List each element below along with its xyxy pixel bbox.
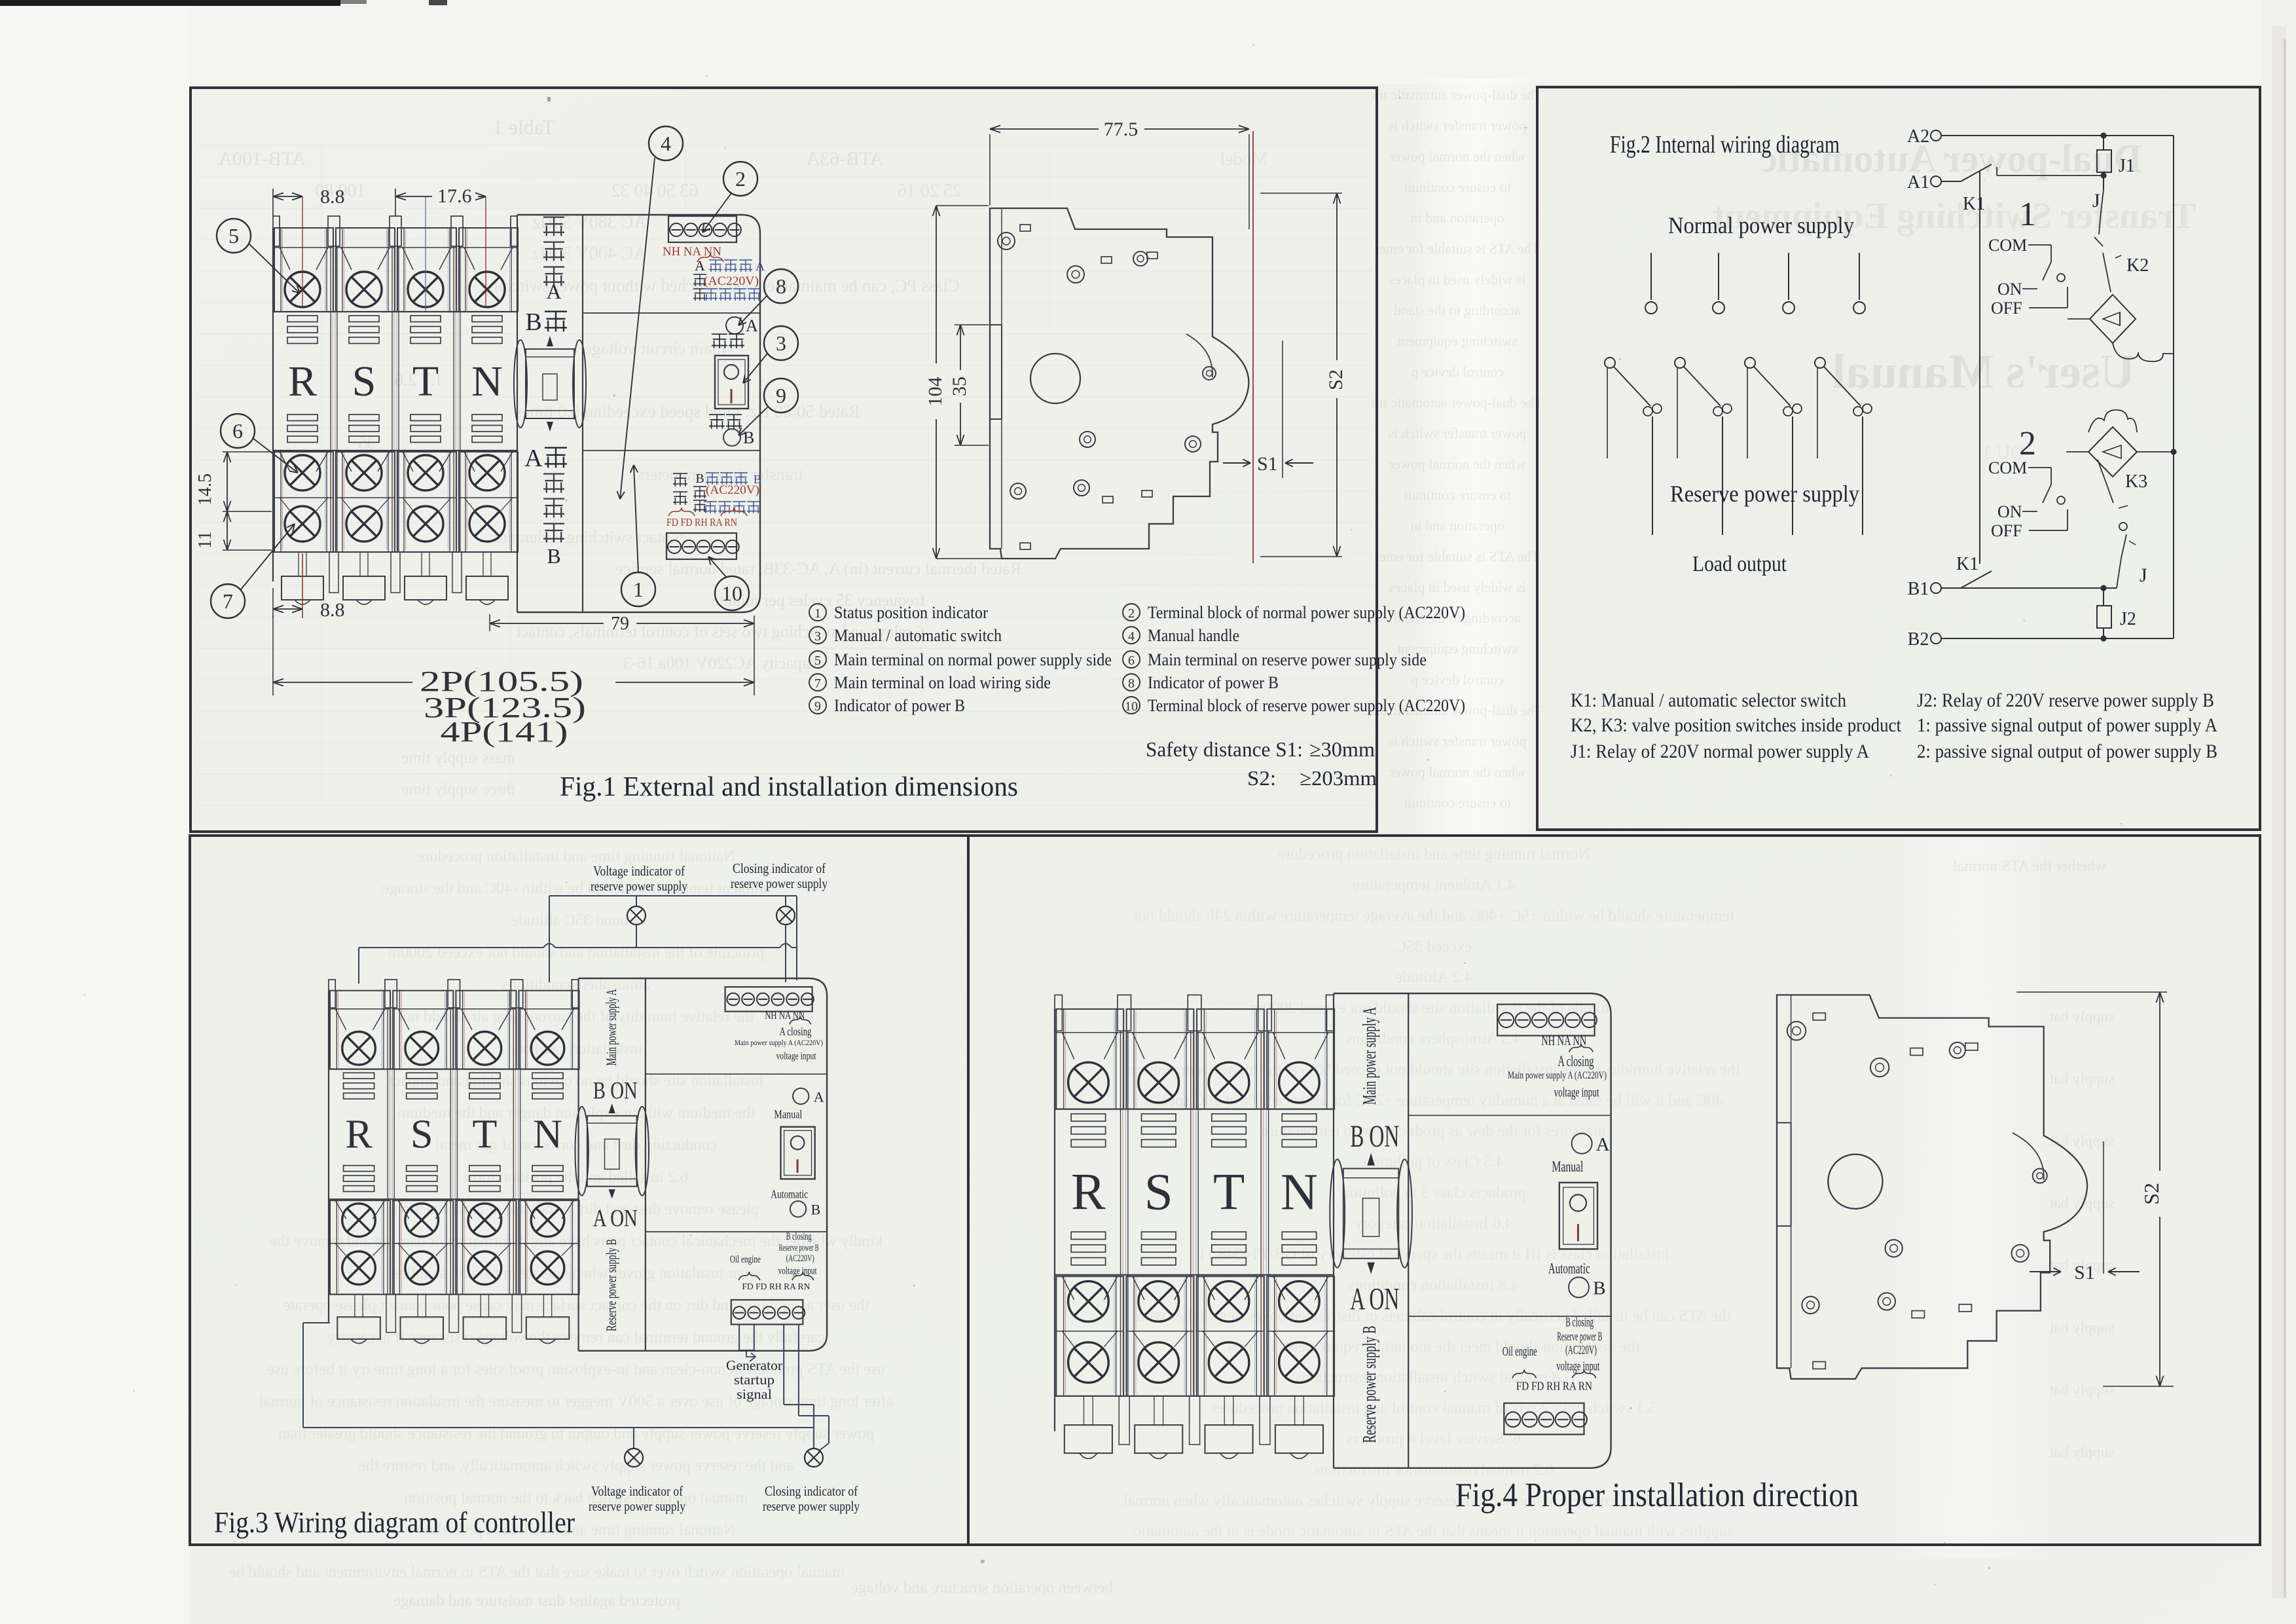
svg-text:63 50 40 32: 63 50 40 32 bbox=[611, 181, 699, 201]
svg-text:NH NA NN: NH NA NN bbox=[1541, 1033, 1586, 1048]
svg-text:9: 9 bbox=[776, 384, 786, 407]
svg-text:contact switching endurance: contact switching endurance bbox=[492, 528, 686, 547]
svg-text:A closing: A closing bbox=[780, 1025, 812, 1038]
svg-text:Reserve power supply: Reserve power supply bbox=[1670, 481, 1859, 507]
svg-text:protected against dust moistur: protected against dust moisture and dama… bbox=[393, 1592, 680, 1610]
svg-text:T: T bbox=[412, 358, 439, 405]
svg-text:Manual: Manual bbox=[1552, 1158, 1583, 1175]
svg-text:≥203mm: ≥203mm bbox=[1300, 766, 1377, 790]
svg-text:B: B bbox=[547, 544, 560, 568]
svg-text:J: J bbox=[2140, 564, 2147, 586]
svg-text:Normal running time and instal: Normal running time and installation pro… bbox=[1278, 845, 1590, 863]
svg-text:B2: B2 bbox=[1908, 629, 1929, 650]
svg-text:R: R bbox=[345, 1113, 373, 1157]
svg-text:ON: ON bbox=[1997, 280, 2022, 299]
svg-text:supply bat: supply bat bbox=[2049, 1071, 2115, 1088]
svg-text:T: T bbox=[472, 1113, 497, 1157]
svg-text:≥30mm: ≥30mm bbox=[1309, 737, 1375, 761]
svg-text:to ensure continuit: to ensure continuit bbox=[1404, 794, 1511, 811]
svg-text:Manual: Manual bbox=[774, 1108, 802, 1121]
svg-text:17.6: 17.6 bbox=[437, 185, 472, 207]
svg-text:reserve power supply: reserve power supply bbox=[763, 1498, 860, 1514]
svg-text:(AC220V): (AC220V) bbox=[704, 274, 759, 288]
svg-text:A: A bbox=[524, 445, 543, 472]
svg-text:10: 10 bbox=[1125, 699, 1138, 714]
svg-text:K3: K3 bbox=[2125, 471, 2147, 492]
svg-text:supply bat: supply bat bbox=[2049, 1319, 2115, 1337]
svg-text:5.1 switch links 2 sets of man: 5.1 switch links 2 sets of manual contro… bbox=[1211, 1399, 1656, 1417]
svg-text:B closing: B closing bbox=[1565, 1316, 1594, 1330]
svg-text:to ensure continuit: to ensure continuit bbox=[1404, 487, 1511, 503]
svg-text:7: 7 bbox=[814, 676, 821, 691]
svg-text:Indicator of power B: Indicator of power B bbox=[834, 696, 965, 715]
svg-text:104: 104 bbox=[924, 377, 946, 407]
svg-text:supply bat: supply bat bbox=[2049, 1382, 2115, 1399]
svg-text:Manual handle: Manual handle bbox=[1148, 626, 1239, 645]
svg-text:7: 7 bbox=[223, 589, 233, 613]
svg-text:reserve power supply: reserve power supply bbox=[731, 876, 828, 891]
svg-text:Safety distance S1:: Safety distance S1: bbox=[1146, 737, 1303, 761]
svg-text:77.5: 77.5 bbox=[1104, 119, 1139, 140]
svg-text:measures for the dew as produc: measures for the dew as products due to … bbox=[1262, 1122, 1606, 1140]
svg-text:R: R bbox=[288, 358, 317, 405]
svg-text:ATB-63A: ATB-63A bbox=[806, 148, 884, 170]
svg-text:B closing: B closing bbox=[786, 1231, 812, 1242]
svg-text:Fig.3 Wiring diagram of contro: Fig.3 Wiring diagram of controller bbox=[214, 1505, 575, 1539]
svg-text:J1: J1 bbox=[2119, 156, 2135, 176]
svg-text:1: 1 bbox=[814, 606, 821, 621]
svg-text:6.2 manual maintenance instruc: 6.2 manual maintenance instructions bbox=[1314, 1461, 1554, 1479]
svg-text:Fig.2 Internal wiring diagram: Fig.2 Internal wiring diagram bbox=[1610, 131, 1840, 158]
svg-text:Main terminal on load wiring s: Main terminal on load wiring side bbox=[834, 673, 1051, 692]
svg-text:B: B bbox=[743, 428, 754, 447]
svg-text:voltage input: voltage input bbox=[1556, 1359, 1599, 1374]
svg-text:exceed 35C: exceed 35C bbox=[1395, 938, 1472, 955]
svg-text:Oil engine: Oil engine bbox=[1503, 1344, 1537, 1359]
svg-text:wear insulation gloves when op: wear insulation gloves when operate in p… bbox=[393, 1264, 759, 1282]
svg-text:Automatic: Automatic bbox=[771, 1187, 808, 1200]
svg-text:principle of the installation: principle of the installation and should… bbox=[388, 944, 764, 961]
svg-text:Model: Model bbox=[1220, 149, 1267, 170]
svg-text:supply bat: supply bat bbox=[2049, 1444, 2115, 1461]
svg-text:A1: A1 bbox=[1907, 172, 1929, 193]
svg-text:when the normal power: when the normal power bbox=[1389, 764, 1525, 780]
svg-text:between operation structure an: between operation structure and voltage bbox=[851, 1579, 1113, 1596]
svg-text:J: J bbox=[2092, 190, 2100, 212]
svg-text:2: 2 bbox=[1128, 606, 1135, 621]
svg-text:3: 3 bbox=[814, 629, 821, 644]
svg-text:4: 4 bbox=[1128, 629, 1135, 644]
svg-text:B: B bbox=[525, 308, 541, 336]
svg-text:(AC220V): (AC220V) bbox=[1565, 1343, 1597, 1357]
svg-text:5: 5 bbox=[814, 654, 821, 668]
svg-text:4P(141): 4P(141) bbox=[441, 716, 568, 748]
svg-text:Fig.1 External and installatio: Fig.1 External and installation dimensio… bbox=[560, 772, 1018, 802]
svg-text:use the ATS products in non-cl: use the ATS products in non-clean and in… bbox=[267, 1361, 886, 1378]
svg-text:to ensure continuit: to ensure continuit bbox=[1404, 179, 1511, 195]
svg-text:FD FD RH RA RN: FD FD RH RA RN bbox=[1516, 1379, 1592, 1392]
svg-text:products class 3 in pollution: products class 3 in pollution bbox=[1341, 1184, 1526, 1202]
svg-text:control device p: control device p bbox=[1411, 363, 1504, 380]
svg-text:Main terminal on reserve power: Main terminal on reserve power supply si… bbox=[1148, 650, 1427, 669]
svg-text:1: 1 bbox=[2019, 196, 2036, 233]
svg-text:supply bat: supply bat bbox=[2049, 1195, 2115, 1212]
svg-text:Voltage indicator of: Voltage indicator of bbox=[593, 863, 685, 879]
svg-text:2: 2 bbox=[735, 167, 746, 191]
svg-text:ON: ON bbox=[1997, 502, 2022, 521]
svg-text:10: 10 bbox=[721, 581, 742, 605]
svg-text:B1: B1 bbox=[1908, 579, 1929, 599]
svg-text:The ATS is suitable for emer: The ATS is suitable for emer bbox=[1374, 548, 1540, 564]
svg-text:supplies with manual operation: supplies with manual operation it means … bbox=[1134, 1522, 1734, 1540]
svg-text:A ON: A ON bbox=[1350, 1282, 1399, 1316]
svg-text:reserve power supply: reserve power supply bbox=[589, 1498, 685, 1514]
svg-text:A2: A2 bbox=[1907, 126, 1929, 147]
svg-text:Manual / automatic switch: Manual / automatic switch bbox=[834, 626, 1002, 645]
svg-text:FD FD RH RA RN: FD FD RH RA RN bbox=[666, 516, 737, 528]
svg-text:OFF: OFF bbox=[1991, 299, 2022, 318]
svg-text:Main terminal on normal power: Main terminal on normal power supply sid… bbox=[834, 650, 1112, 669]
svg-text:14.5: 14.5 bbox=[195, 473, 215, 506]
svg-text:J2: J2 bbox=[2120, 609, 2136, 629]
svg-text:Reserve power supply B: Reserve power supply B bbox=[1359, 1326, 1380, 1443]
svg-text:Main power supply A (AC220V): Main power supply A (AC220V) bbox=[735, 1038, 823, 1047]
svg-text:11: 11 bbox=[195, 531, 215, 549]
svg-text:carefully the ground terminal: carefully the ground terminal can remove… bbox=[327, 1329, 825, 1346]
svg-text:9: 9 bbox=[814, 699, 821, 714]
svg-text:switching equipment: switching equipment bbox=[1397, 333, 1518, 349]
svg-text:Fig.4 Proper installation dire: Fig.4 Proper installation direction bbox=[1455, 1477, 1859, 1514]
svg-text:Rated thermal current (in) A,: Rated thermal current (in) A, AC-33B, ra… bbox=[615, 559, 1021, 578]
svg-text:mass supply time: mass supply time bbox=[401, 749, 515, 767]
svg-text:User's Manual: User's Manual bbox=[1832, 345, 2136, 399]
svg-text:is widely used in places: is widely used in places bbox=[1389, 579, 1526, 595]
svg-text:around 35C altitude: around 35C altitude bbox=[511, 912, 642, 929]
svg-text:installation category: installation category bbox=[509, 1040, 643, 1058]
svg-text:8.8: 8.8 bbox=[320, 186, 345, 208]
svg-text:B: B bbox=[1593, 1278, 1605, 1299]
svg-text:J2: Relay of 220V reserve powe: J2: Relay of 220V reserve power supply B bbox=[1917, 690, 2214, 711]
svg-text:FD FD RH RA RN: FD FD RH RA RN bbox=[742, 1282, 810, 1292]
svg-text:79: 79 bbox=[611, 614, 629, 634]
svg-text:S2:: S2: bbox=[1247, 766, 1276, 790]
svg-text:T: T bbox=[1213, 1164, 1245, 1221]
svg-text:The dual-power automatic tra: The dual-power automatic tra bbox=[1372, 86, 1542, 103]
svg-text:supply bat: supply bat bbox=[2049, 1133, 2115, 1150]
svg-text:S1: S1 bbox=[1257, 453, 1278, 475]
svg-text:6: 6 bbox=[1128, 654, 1135, 668]
svg-text:K2: K2 bbox=[2126, 255, 2149, 276]
svg-text:signal: signal bbox=[737, 1386, 772, 1402]
svg-text:J1: Relay of 220V normal power: J1: Relay of 220V normal power supply A bbox=[1571, 741, 1869, 762]
svg-text:Oil engine: Oil engine bbox=[730, 1254, 761, 1265]
svg-text:when the normal power: when the normal power bbox=[1389, 148, 1525, 164]
svg-text:K1: K1 bbox=[1963, 194, 1985, 214]
svg-text:Voltage indicator of: Voltage indicator of bbox=[591, 1483, 683, 1499]
svg-text:COM: COM bbox=[1988, 236, 2027, 255]
svg-text:1: passive signal output of po: 1: passive signal output of power supply… bbox=[1917, 714, 2217, 736]
svg-text:B: B bbox=[811, 1202, 821, 1218]
svg-text:40C and it will be rated at a: 40C and it will be rated at a humidity t… bbox=[1144, 1092, 1724, 1109]
svg-text:Reserve power supply B: Reserve power supply B bbox=[603, 1239, 619, 1331]
svg-text:S1: S1 bbox=[2074, 1262, 2095, 1283]
svg-text:Terminal block of normal power: Terminal block of normal power supply (A… bbox=[1148, 603, 1465, 622]
svg-text:voltage input: voltage input bbox=[778, 1266, 817, 1277]
svg-text:S: S bbox=[410, 1113, 433, 1157]
svg-text:The ATS is suitable for emer: The ATS is suitable for emer bbox=[1374, 240, 1540, 257]
svg-text:2: 2 bbox=[2019, 425, 2036, 462]
svg-text:8: 8 bbox=[1128, 676, 1135, 691]
svg-text:S: S bbox=[352, 358, 376, 405]
svg-text:Closing indicator of: Closing indicator of bbox=[733, 860, 826, 876]
svg-text:the relative humidity of the s: the relative humidity of the surrounding… bbox=[398, 1008, 754, 1025]
svg-text:S2: S2 bbox=[1325, 369, 1347, 390]
svg-text:Indicator of power B: Indicator of power B bbox=[1148, 673, 1279, 692]
svg-text:Table 1: Table 1 bbox=[493, 115, 555, 139]
svg-text:1: 1 bbox=[633, 578, 644, 601]
svg-text:4: 4 bbox=[661, 132, 671, 155]
svg-text:please remove dust and dirt in: please remove dust and dirt in the case … bbox=[393, 1200, 759, 1218]
svg-text:Main power supply A (AC220V): Main power supply A (AC220V) bbox=[1508, 1070, 1607, 1081]
svg-text:5: 5 bbox=[228, 224, 239, 248]
svg-text:K1: K1 bbox=[1956, 554, 1978, 574]
svg-text:4.2 Altitude: 4.2 Altitude bbox=[1395, 969, 1472, 986]
svg-text:4.1 Ambient temperature: 4.1 Ambient temperature bbox=[1352, 876, 1515, 894]
svg-text:S: S bbox=[1144, 1164, 1173, 1221]
svg-text:is widely used in places: is widely used in places bbox=[1389, 271, 1526, 287]
svg-text:voltage input: voltage input bbox=[776, 1051, 816, 1062]
svg-text:K2, K3: valve position switche: K2, K3: valve position switches inside p… bbox=[1571, 714, 1902, 736]
svg-text:according to the stand: according to the stand bbox=[1394, 302, 1521, 318]
svg-text:control device p: control device p bbox=[1411, 671, 1504, 688]
svg-text:Load output: Load output bbox=[1692, 552, 1787, 576]
svg-text:startup: startup bbox=[734, 1372, 774, 1388]
svg-text:Status position indicator: Status position indicator bbox=[834, 603, 988, 622]
svg-text:A closing: A closing bbox=[1558, 1053, 1594, 1069]
svg-text:capacity AC220V 100a 16-3: capacity AC220V 100a 16-3 bbox=[623, 654, 817, 673]
svg-text:A: A bbox=[756, 259, 765, 274]
svg-text:8.8: 8.8 bbox=[320, 599, 345, 621]
svg-text:Main power supply A: Main power supply A bbox=[1359, 1007, 1380, 1105]
svg-text:supply bat: supply bat bbox=[2049, 1008, 2115, 1025]
svg-text:National running time and inst: National running time and installation p… bbox=[417, 847, 736, 865]
svg-text:transfer time parameters: transfer time parameters bbox=[638, 465, 803, 484]
svg-text:main circuit voltage: main circuit voltage bbox=[584, 339, 725, 358]
svg-text:4.6 Installation category: 4.6 Installation category bbox=[1354, 1215, 1513, 1232]
svg-text:Main power supply A: Main power supply A bbox=[603, 989, 619, 1065]
svg-text:Generator: Generator bbox=[726, 1357, 782, 1373]
svg-text:N: N bbox=[471, 358, 503, 405]
svg-text:A ON: A ON bbox=[593, 1206, 638, 1232]
svg-text:A: A bbox=[746, 316, 758, 335]
svg-text:3: 3 bbox=[776, 331, 786, 355]
svg-text:(AC220V): (AC220V) bbox=[786, 1253, 814, 1264]
svg-text:when the normal power: when the normal power bbox=[1389, 456, 1525, 472]
svg-text:A: A bbox=[695, 257, 705, 274]
svg-text:8: 8 bbox=[776, 274, 786, 298]
svg-text:ambient temperature should be: ambient temperature should be within -40… bbox=[382, 879, 771, 897]
svg-text:OFF: OFF bbox=[1991, 521, 2022, 540]
svg-text:N: N bbox=[1281, 1164, 1318, 1221]
svg-text:power transfer switch is: power transfer switch is bbox=[1389, 117, 1527, 134]
svg-text:Reserve power B: Reserve power B bbox=[779, 1243, 819, 1253]
svg-text:three supply time: three supply time bbox=[401, 781, 515, 798]
svg-text:operation and in: operation and in bbox=[1411, 210, 1504, 226]
svg-text:N: N bbox=[533, 1113, 562, 1157]
svg-text:ATB-100A: ATB-100A bbox=[218, 148, 306, 170]
svg-text:temperature should be within +: temperature should be within +5C +40C an… bbox=[1133, 907, 1734, 925]
svg-text:K1: Manual / automatic selecto: K1: Manual / automatic selector switch bbox=[1571, 690, 1846, 711]
svg-text:manual operation switch over t: manual operation switch over to make sur… bbox=[229, 1563, 845, 1581]
svg-text:(AC220V): (AC220V) bbox=[706, 483, 759, 497]
svg-text:B ON: B ON bbox=[1350, 1119, 1399, 1154]
svg-text:Reserve power B: Reserve power B bbox=[1557, 1330, 1602, 1344]
svg-text:A: A bbox=[546, 280, 561, 303]
svg-text:The dual-power automatic tra: The dual-power automatic tra bbox=[1372, 394, 1542, 411]
svg-text:R: R bbox=[1071, 1164, 1106, 1221]
svg-text:25 20 16: 25 20 16 bbox=[898, 181, 962, 201]
svg-text:A: A bbox=[814, 1088, 824, 1105]
svg-text:6: 6 bbox=[232, 419, 243, 443]
svg-text:power transfer switch is: power transfer switch is bbox=[1389, 733, 1527, 749]
svg-text:Closing indicator of: Closing indicator of bbox=[765, 1483, 858, 1499]
svg-text:power transfer switch is: power transfer switch is bbox=[1389, 425, 1527, 441]
svg-text:35: 35 bbox=[949, 377, 970, 396]
svg-text:whether the ATS normal: whether the ATS normal bbox=[1953, 858, 2106, 875]
svg-text:B ON: B ON bbox=[593, 1078, 638, 1105]
svg-text:2: passive signal output of po: 2: passive signal output of power supply… bbox=[1917, 741, 2217, 762]
svg-text:AC 400V 50Hz: AC 400V 50Hz bbox=[532, 244, 646, 264]
svg-text:and the reserve power supply s: and the reserve power supply switch auto… bbox=[359, 1457, 794, 1475]
svg-text:Automatic: Automatic bbox=[1548, 1261, 1590, 1277]
svg-text:Normal power supply: Normal power supply bbox=[1668, 212, 1854, 238]
svg-text:reserve power supply: reserve power supply bbox=[591, 878, 687, 894]
svg-text:manual operation switch back t: manual operation switch back to the norm… bbox=[404, 1489, 748, 1507]
svg-text:operation and in: operation and in bbox=[1411, 517, 1504, 534]
svg-text:altitude of the installation s: altitude of the installation site should… bbox=[1250, 999, 1617, 1017]
svg-text:Terminal block of reserve powe: Terminal block of reserve power supply (… bbox=[1148, 696, 1465, 715]
svg-text:installation class is III it m: installation class is III it means the s… bbox=[1198, 1246, 1669, 1263]
svg-text:installation site should be no: installation site should be no obvious s… bbox=[389, 1072, 763, 1090]
svg-text:voltage input: voltage input bbox=[1554, 1086, 1599, 1100]
svg-text:B: B bbox=[695, 471, 704, 486]
svg-text:S2: S2 bbox=[2140, 1183, 2163, 1205]
svg-text:A: A bbox=[1596, 1134, 1610, 1155]
